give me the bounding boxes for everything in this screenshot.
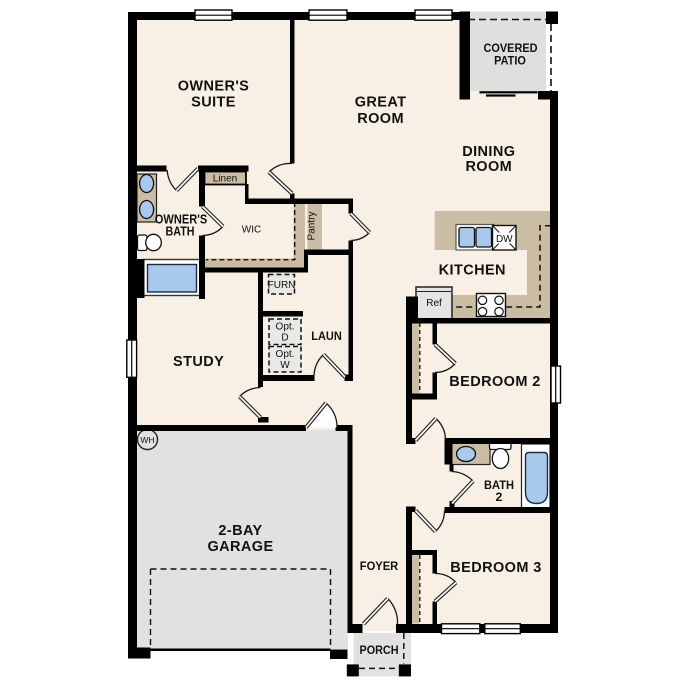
svg-text:GARAGE: GARAGE	[207, 539, 273, 555]
svg-text:Opt.: Opt.	[276, 322, 295, 333]
svg-text:WIC: WIC	[242, 225, 261, 236]
svg-text:OWNER'S: OWNER'S	[178, 78, 250, 94]
svg-text:ROOM: ROOM	[465, 159, 512, 175]
svg-text:ROOM: ROOM	[357, 111, 404, 127]
svg-text:SUITE: SUITE	[191, 94, 236, 110]
svg-text:BEDROOM 2: BEDROOM 2	[449, 374, 540, 390]
svg-text:Pantry: Pantry	[307, 212, 318, 241]
svg-text:BATH: BATH	[166, 224, 195, 239]
svg-text:Opt.: Opt.	[276, 349, 295, 360]
svg-text:D: D	[281, 333, 288, 344]
svg-text:2: 2	[496, 490, 503, 504]
svg-text:DINING: DINING	[462, 144, 515, 160]
svg-text:WH: WH	[140, 435, 154, 445]
svg-text:Linen: Linen	[213, 174, 237, 185]
svg-text:STUDY: STUDY	[173, 354, 224, 370]
svg-text:GREAT: GREAT	[355, 94, 407, 110]
svg-text:LAUN: LAUN	[311, 329, 342, 343]
svg-text:DW: DW	[496, 234, 513, 245]
svg-text:BEDROOM 3: BEDROOM 3	[450, 560, 541, 576]
svg-text:PORCH: PORCH	[360, 643, 399, 657]
svg-text:W: W	[280, 360, 290, 371]
svg-text:FOYER: FOYER	[360, 559, 399, 573]
svg-text:2-BAY: 2-BAY	[218, 523, 262, 539]
svg-text:FURN: FURN	[268, 280, 296, 291]
svg-text:KITCHEN: KITCHEN	[439, 263, 506, 279]
svg-text:Ref: Ref	[426, 298, 442, 309]
svg-text:PATIO: PATIO	[494, 53, 526, 67]
